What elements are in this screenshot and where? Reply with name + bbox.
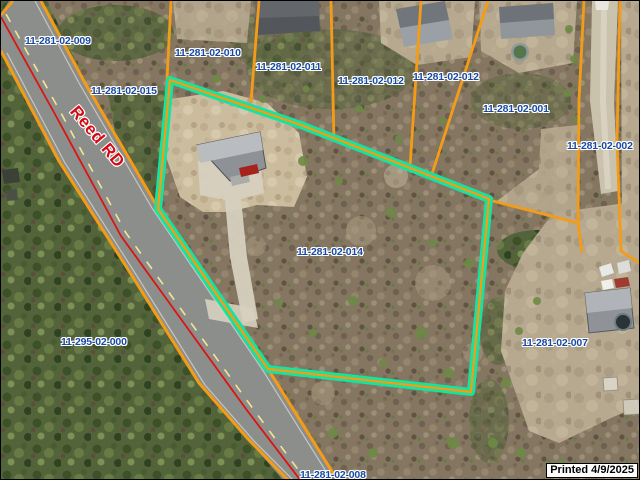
parcel-label-002: 11-281-02-002 xyxy=(567,140,633,152)
parcel-label-015: 11-281-02-015 xyxy=(91,85,157,97)
parcel-label-012a: 11-281-02-012 xyxy=(338,75,404,87)
map-canvas[interactable]: 11-281-02-009 11-281-02-015 11-281-02-01… xyxy=(0,0,640,480)
parcel-label-010: 11-281-02-010 xyxy=(175,47,241,59)
shed xyxy=(603,377,618,391)
printed-date-stamp: Printed 4/9/2025 xyxy=(546,463,638,478)
parcel-label-014-selected: 11-281-02-014 xyxy=(297,246,363,258)
parcel-label-009: 11-281-02-009 xyxy=(25,35,91,47)
parcel-label-011: 11-281-02-011 xyxy=(256,61,321,73)
parcel-label-008: 11-281-02-008 xyxy=(300,469,366,480)
parcel-label-012b: 11-281-02-012 xyxy=(413,71,479,83)
backyard-pool xyxy=(615,314,631,330)
parcel-label-001: 11-281-02-001 xyxy=(483,103,549,115)
parcel-label-000: 11-295-02-000 xyxy=(61,336,127,348)
parcel-label-007: 11-281-02-007 xyxy=(522,337,588,349)
shed xyxy=(623,399,640,415)
